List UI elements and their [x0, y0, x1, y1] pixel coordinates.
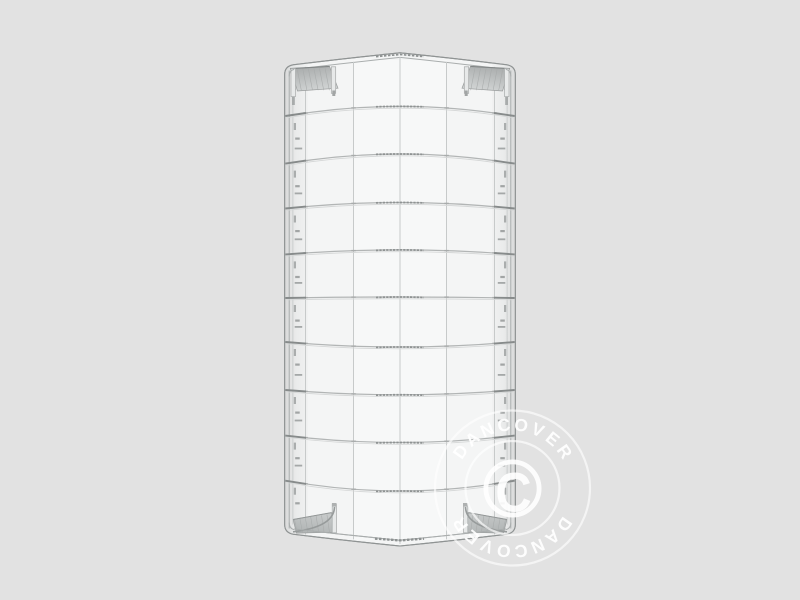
svg-text:O: O	[513, 414, 529, 436]
svg-text:C: C	[495, 462, 531, 524]
svg-text:O: O	[496, 540, 512, 562]
